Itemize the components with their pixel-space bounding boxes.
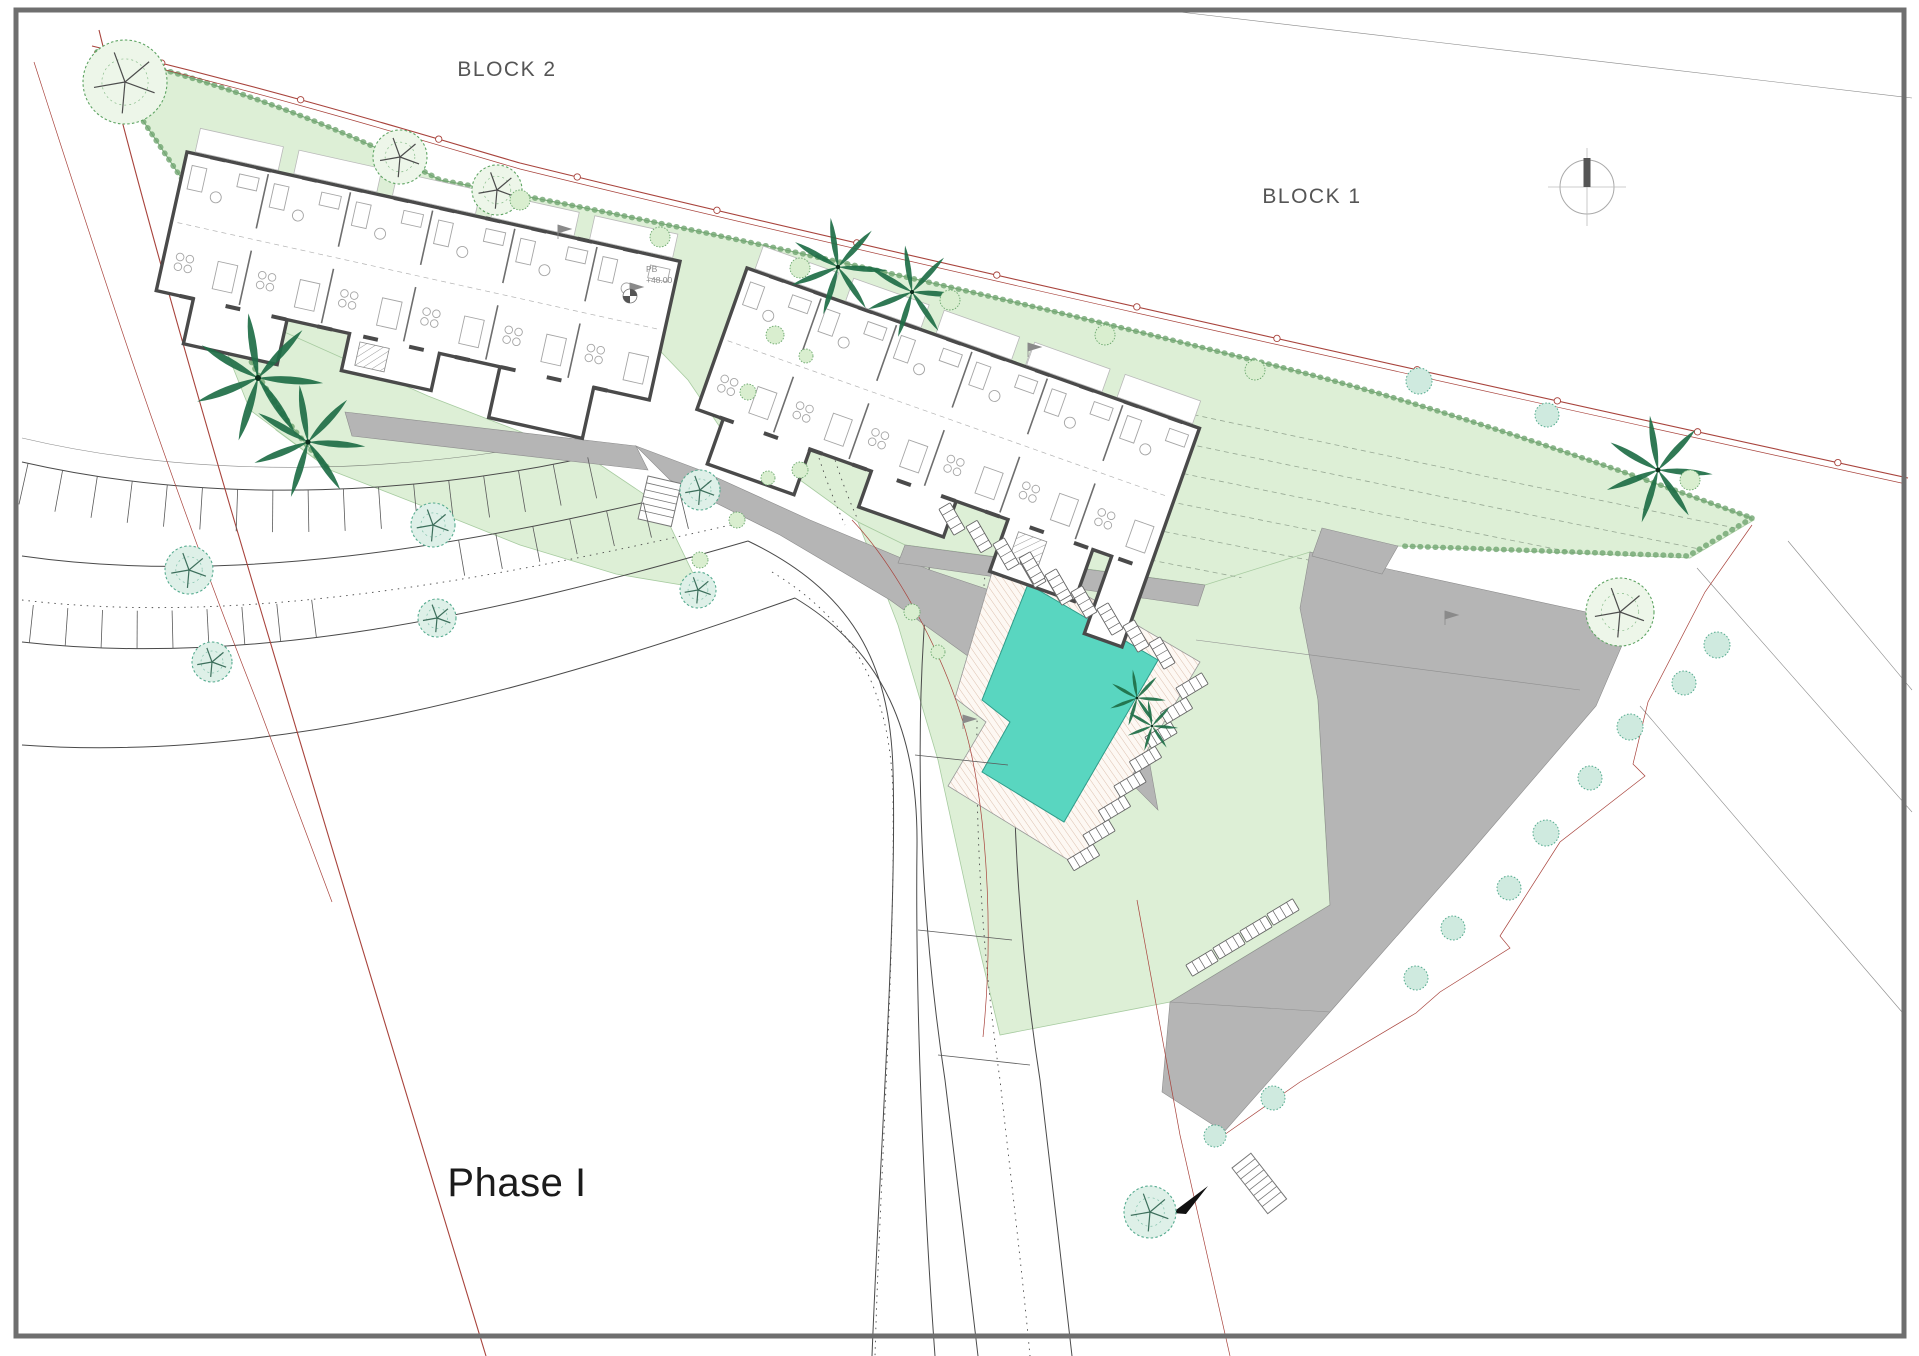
parking-stall-line: [308, 490, 309, 532]
site-plan-drawing: BLOCK 2 BLOCK 1 Phase I PB +48.00: [0, 0, 1919, 1356]
shrub: [740, 384, 756, 400]
parking-stall-line: [163, 485, 167, 527]
deciduous-tree: [83, 40, 167, 124]
level-marker-label-line1: PB: [646, 264, 658, 274]
shrub: [1680, 470, 1700, 490]
stairs-icon: [638, 476, 681, 527]
parking-stall-line: [496, 534, 503, 569]
block2-label: BLOCK 2: [457, 58, 556, 81]
street-tree: [165, 546, 213, 594]
level-marker-label-line2: +48.00: [646, 275, 673, 285]
entrance-arrow: [1172, 1186, 1208, 1214]
parking-stall-line: [172, 610, 173, 648]
parking-stall-line: [91, 476, 97, 518]
boundary-tree: [1406, 368, 1432, 394]
parking-stall-line: [101, 610, 102, 648]
shrub: [1245, 360, 1265, 380]
shrub: [692, 552, 708, 568]
boundary-tree: [1441, 916, 1465, 940]
boundary-tree: [1404, 966, 1428, 990]
phase-label: Phase I: [447, 1161, 586, 1205]
parking-stall-line: [459, 540, 465, 575]
compass-icon: [1548, 148, 1626, 226]
street-tree: [1124, 1186, 1176, 1238]
street-tree: [411, 503, 455, 547]
parking-stall-line: [55, 470, 63, 511]
benchmark-icon: [623, 289, 637, 303]
parking-stall-line: [277, 604, 281, 642]
shrub: [766, 326, 784, 344]
shrub: [1095, 325, 1115, 345]
boundary-tree: [1672, 671, 1696, 695]
shrub: [792, 462, 808, 478]
site-plan-page: BLOCK 2 BLOCK 1 Phase I PB +48.00: [0, 0, 1919, 1356]
shrub: [510, 190, 530, 210]
parking-stall-line: [65, 608, 68, 646]
parking-stall-line: [200, 488, 203, 530]
shrub: [940, 290, 960, 310]
deciduous-tree: [1586, 578, 1654, 646]
boundary-tree: [1204, 1125, 1226, 1147]
deciduous-tree: [373, 130, 427, 184]
block1-label: BLOCK 1: [1262, 185, 1361, 208]
boundary-tree: [1704, 632, 1730, 658]
shrub: [904, 604, 920, 620]
north-needle: [1584, 158, 1591, 187]
boundary-tree: [1261, 1086, 1285, 1110]
shrub: [650, 227, 670, 247]
street-tree: [192, 642, 232, 682]
street-tree: [680, 572, 716, 608]
shrub: [790, 258, 810, 278]
boundary-tree: [1535, 403, 1559, 427]
shrub: [799, 349, 813, 363]
boundary-tree: [1617, 714, 1643, 740]
parking-stall-line: [19, 463, 28, 504]
boundary-tree: [1578, 766, 1602, 790]
stairs-icon: [1232, 1153, 1287, 1213]
parking-stall-line: [343, 489, 345, 531]
boundary-tree: [1533, 820, 1559, 846]
parking-stall-line: [312, 600, 317, 638]
shrub: [729, 512, 745, 528]
street-tree: [418, 599, 456, 637]
parking-stall-line: [29, 605, 33, 643]
parking-stall-line: [207, 609, 209, 647]
shrub: [931, 645, 945, 659]
boundary-tree: [1497, 876, 1521, 900]
shrub: [761, 471, 775, 485]
street-tree: [680, 470, 720, 510]
parking-stall-line: [127, 481, 132, 523]
parking-stall-line: [242, 607, 245, 645]
parking-stall-line: [379, 487, 382, 529]
parking-stall-line: [236, 489, 237, 531]
